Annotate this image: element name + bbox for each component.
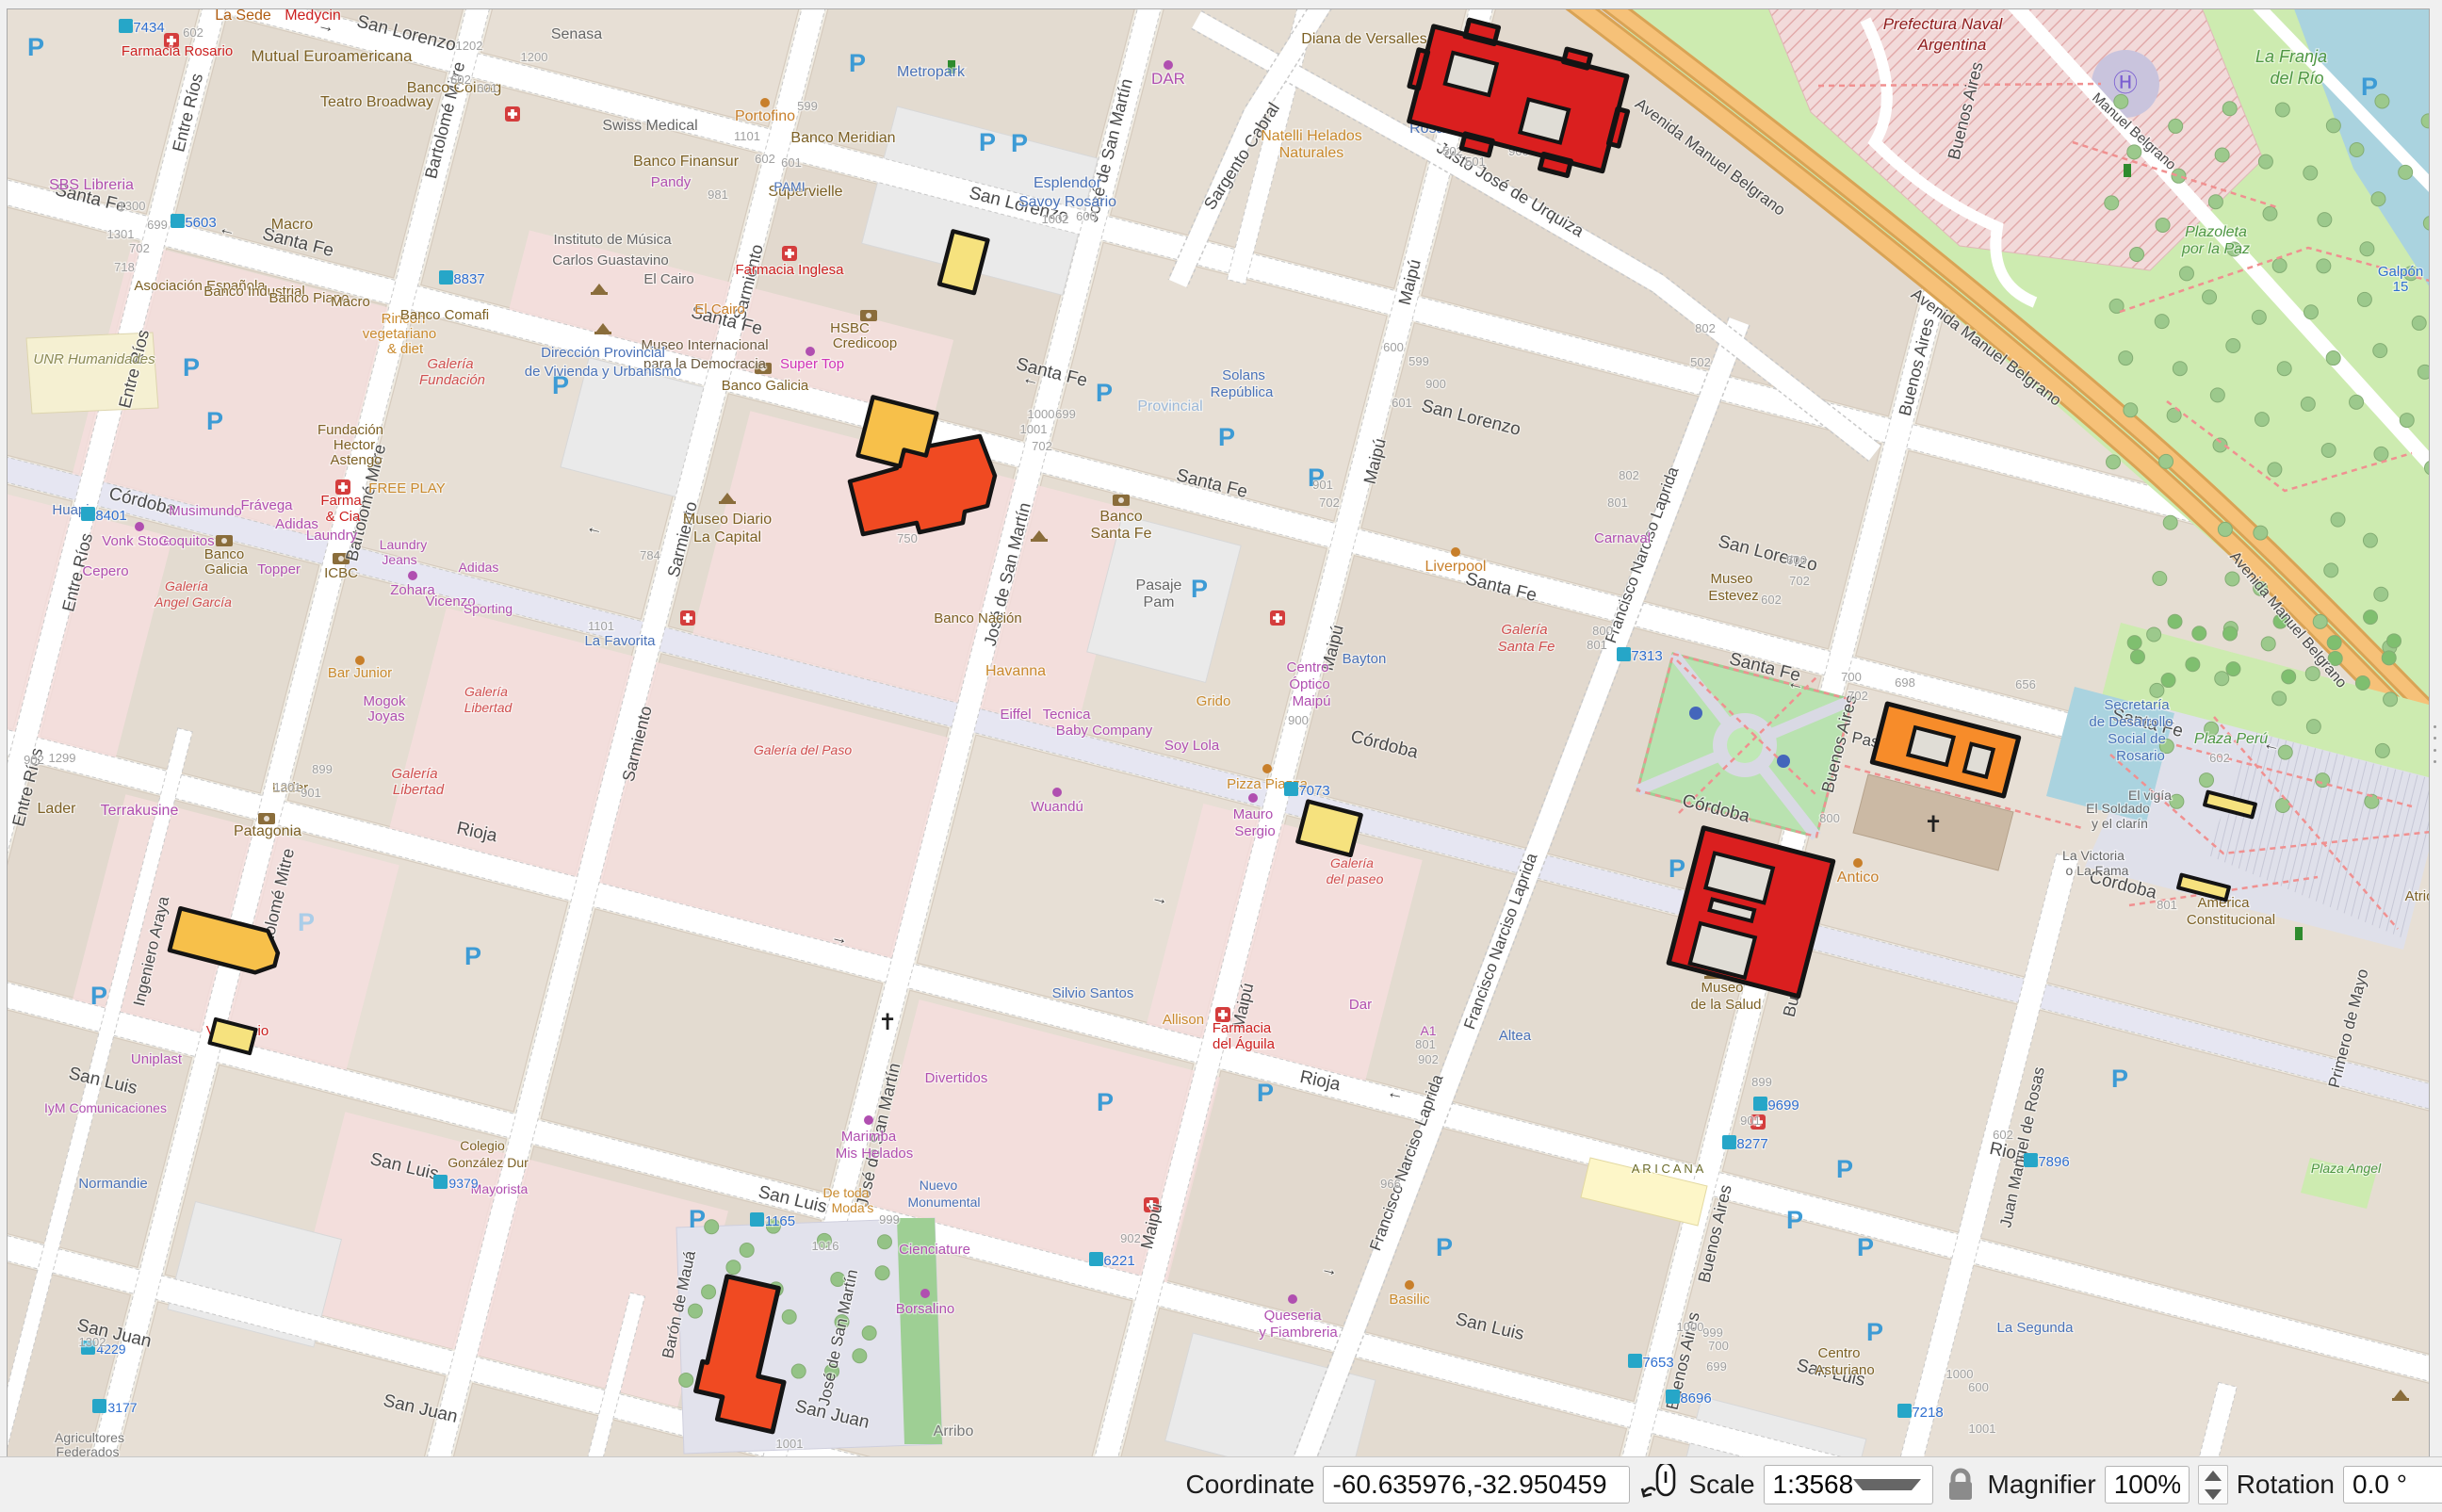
- map-label: & Cia: [326, 509, 361, 525]
- tree: [2173, 362, 2187, 376]
- map-label: 900: [1288, 713, 1309, 727]
- map-label: 601: [781, 155, 802, 170]
- map-label: 600: [1968, 1380, 1989, 1394]
- map-label: Borsalino: [896, 1301, 955, 1317]
- map-label: 802: [1695, 321, 1716, 335]
- shop-icon: [806, 347, 815, 356]
- map-label: Nuevo: [920, 1178, 958, 1193]
- tree: [2163, 515, 2177, 529]
- map-label: Museo: [1710, 571, 1752, 587]
- map-label: 702: [1789, 574, 1810, 588]
- map-label: FREE PLAY: [368, 480, 445, 496]
- map-label: Fundación: [317, 422, 383, 438]
- map-label: 1101: [588, 619, 614, 633]
- map-label: 902: [1418, 1052, 1439, 1066]
- bus-stop-icon: [1753, 1097, 1767, 1111]
- tree: [2161, 674, 2175, 688]
- map-label: 501: [1465, 154, 1486, 169]
- parking-icon: P: [1097, 1088, 1114, 1116]
- map-label: 602: [755, 152, 775, 166]
- map-label: 602: [183, 25, 203, 40]
- map-label: República: [1211, 384, 1274, 400]
- map-label: 1302: [79, 1335, 106, 1349]
- tree: [2127, 636, 2141, 650]
- map-label: Libertad: [464, 700, 513, 715]
- mouse-position-icon[interactable]: [1638, 1464, 1680, 1505]
- tree: [2301, 397, 2315, 411]
- map-label: Natelli Helados: [1261, 128, 1362, 144]
- fountain-icon: [1777, 755, 1790, 768]
- map-label: 7218: [1912, 1405, 1943, 1421]
- map-label: de Desarrollo: [2089, 714, 2173, 730]
- parking-icon: P: [1436, 1233, 1453, 1261]
- map-label: De toda: [822, 1185, 869, 1200]
- map-label: 700: [1841, 670, 1862, 684]
- scale-combo[interactable]: 1:3568: [1764, 1465, 1933, 1504]
- map-label: Mauro: [1233, 806, 1274, 822]
- map-label: Frávega: [240, 497, 293, 513]
- map-label: Estevez: [1708, 588, 1758, 604]
- map-label: Eiffel: [1000, 707, 1031, 723]
- tree: [740, 1243, 754, 1257]
- map-label: Adidas: [459, 560, 499, 575]
- map-label: 750: [897, 531, 918, 545]
- shop-icon: [135, 522, 144, 531]
- parking-icon: P: [979, 128, 996, 156]
- tree: [2226, 339, 2240, 353]
- tree: [2306, 720, 2320, 734]
- map-label: Carnaval: [1594, 530, 1651, 546]
- parking-icon: P: [1669, 854, 1685, 883]
- map-label: 599: [797, 99, 818, 113]
- parking-icon: P: [1191, 575, 1208, 603]
- tree: [2375, 743, 2389, 757]
- map-label: Galicia: [204, 561, 249, 577]
- tree: [2268, 463, 2282, 477]
- parking-icon: P: [90, 982, 107, 1010]
- map-label: vegetariano: [363, 326, 436, 342]
- map-label: La Segunda: [1997, 1320, 2075, 1336]
- map-label: Esplendor: [1034, 175, 1102, 191]
- map-label: 7653: [1642, 1355, 1673, 1371]
- map-label: Liverpool: [1425, 559, 1487, 575]
- map-label: Super Top: [780, 356, 844, 372]
- tree: [853, 1349, 867, 1363]
- map-label: Cepero: [82, 563, 128, 579]
- tree: [2321, 443, 2336, 457]
- tree: [2313, 614, 2327, 628]
- map-label: Mogok: [363, 693, 406, 709]
- map-label: Altea: [1499, 1028, 1532, 1044]
- map-label: ICBC: [324, 565, 358, 581]
- tree: [2373, 344, 2387, 358]
- map-label: El Cairo: [694, 301, 744, 317]
- tree: [705, 1220, 719, 1234]
- map-label: Hector: [334, 437, 375, 453]
- map-label: Laundry: [306, 528, 358, 544]
- map-label: Farmacia: [1213, 1020, 1272, 1036]
- tree: [702, 1285, 716, 1299]
- fitness-icon: [2124, 164, 2131, 177]
- map-label: Lader: [38, 801, 77, 817]
- tree: [862, 1325, 876, 1340]
- map-label: Credicoop: [833, 335, 897, 351]
- map-label: 1165: [765, 1213, 795, 1229]
- scale-label: Scale: [1688, 1470, 1754, 1500]
- map-label: Carlos Guastavino: [552, 252, 668, 268]
- map-label: 802: [1619, 468, 1639, 482]
- map-label: La Franja: [2255, 47, 2327, 66]
- map-label: Banco: [1099, 509, 1142, 525]
- tree: [2130, 247, 2144, 261]
- bank-icon-dot: [221, 538, 227, 544]
- map-label: 901: [1740, 1114, 1761, 1128]
- map-label: Rosario: [2116, 748, 2165, 764]
- map-label: 601: [477, 81, 497, 95]
- restaurant-icon: [1853, 858, 1863, 868]
- map-label: 8401: [95, 508, 126, 524]
- map-label: La Victoria: [2062, 848, 2125, 863]
- parking-icon: P: [1836, 1155, 1853, 1183]
- map-label: Bayton: [1343, 651, 1387, 667]
- restaurant-icon: [1451, 547, 1460, 557]
- scale-value: 1:3568: [1765, 1470, 1854, 1500]
- map-label: Macro: [271, 217, 314, 233]
- map-label: Arribo: [934, 1423, 974, 1439]
- map-label: de la Salud: [1690, 997, 1761, 1013]
- map-label: González Dur: [448, 1155, 529, 1170]
- panel-resize-handle[interactable]: [2434, 725, 2439, 763]
- map-label: 8837: [453, 271, 484, 287]
- tree: [875, 1266, 889, 1280]
- tree: [2327, 636, 2341, 650]
- spin-up-icon[interactable]: [2205, 1471, 2222, 1481]
- map-label: 966: [1380, 1177, 1401, 1191]
- tree: [2305, 667, 2320, 681]
- map-label: Secretaría: [2104, 697, 2170, 713]
- lock-scale-icon[interactable]: [1942, 1464, 1979, 1505]
- tree: [2324, 563, 2338, 577]
- map-label: Libertad: [393, 782, 445, 798]
- map-label: Angel García: [154, 594, 232, 610]
- map-label: 999: [879, 1212, 900, 1227]
- map-label: Solans: [1222, 367, 1265, 383]
- map-label: 9379: [448, 1176, 478, 1191]
- tree: [2384, 692, 2398, 707]
- restaurant-icon: [1262, 764, 1272, 773]
- map-label: Centro: [1817, 1345, 1860, 1361]
- map-label: Savoy Rosario: [1018, 194, 1116, 210]
- tree: [2159, 454, 2173, 468]
- map-label: Wuandú: [1031, 799, 1083, 815]
- map-label: Silvio Santos: [1052, 985, 1134, 1001]
- map-label: Plazoleta: [2185, 224, 2247, 240]
- restaurant-icon: [1405, 1280, 1414, 1290]
- map-label: 599: [1408, 354, 1429, 368]
- tree: [2169, 119, 2183, 133]
- helipad-icon: Ⓗ: [2113, 70, 2138, 98]
- map-label: Centro: [1286, 659, 1328, 675]
- map-label: 702: [1848, 689, 1868, 703]
- shop-icon: [1164, 60, 1173, 70]
- bus-stop-icon: [1284, 782, 1298, 796]
- tree: [2225, 572, 2239, 586]
- map-label: 602: [2209, 751, 2230, 765]
- bus-stop-icon: [1666, 1390, 1680, 1404]
- map-label: Provincial: [1137, 398, 1202, 415]
- tree: [2107, 455, 2121, 469]
- tree: [2278, 745, 2292, 759]
- parking-icon: P: [552, 371, 569, 399]
- map-label: Óptico: [1289, 676, 1329, 692]
- map-label: Allison: [1163, 1012, 1204, 1028]
- map-label: 801: [1415, 1037, 1436, 1051]
- tree: [2218, 522, 2232, 536]
- map-label: SBS Libreria: [49, 177, 134, 193]
- tree: [2179, 267, 2193, 281]
- shop-icon: [408, 571, 417, 580]
- parking-icon: P: [1308, 463, 1325, 492]
- map-label: y Fiambreria: [1259, 1325, 1338, 1341]
- map-label: Social de: [2108, 731, 2166, 747]
- tree: [2105, 196, 2119, 210]
- map-label: Farmacia Rosario: [122, 43, 233, 59]
- map-label: Galpón: [2378, 264, 2423, 280]
- map-label: 656: [2015, 677, 2036, 691]
- status-bar: Coordinate Scale 1:3568 Magnifier Rotati…: [0, 1456, 2442, 1512]
- map-label: 902: [24, 753, 44, 767]
- tree: [2374, 587, 2388, 601]
- parking-icon: P: [464, 942, 481, 970]
- map-label: Terrakusine: [101, 803, 179, 819]
- map-label: Atrio: [2405, 888, 2429, 904]
- map-label: Pasaje: [1136, 577, 1182, 593]
- tree: [679, 1373, 693, 1387]
- map-label: 1301: [107, 227, 135, 241]
- parking-icon: P: [1011, 129, 1028, 157]
- tree: [2276, 799, 2290, 813]
- magnifier-input[interactable]: [2105, 1466, 2190, 1504]
- tree: [2317, 259, 2331, 273]
- map-label: 901: [301, 786, 321, 800]
- map-label: 1000: [1028, 407, 1055, 421]
- magnifier-spinner[interactable]: [2198, 1465, 2228, 1504]
- map-label: Dirección Provincial: [541, 345, 665, 361]
- bus-stop-icon: [1089, 1252, 1103, 1266]
- church-icon: ✝: [878, 1009, 897, 1035]
- map-label: 801: [2157, 898, 2177, 912]
- map-label: 1001: [776, 1437, 804, 1451]
- shop-icon: [1248, 793, 1258, 803]
- tree: [2215, 148, 2229, 162]
- map-label: Galería: [427, 356, 473, 372]
- selected-feature-hole: [1964, 744, 1994, 777]
- tree: [2223, 626, 2238, 641]
- map-label: Galería: [1330, 855, 1374, 870]
- tree: [2200, 773, 2214, 788]
- map-label: del Águila: [1213, 1036, 1276, 1052]
- tree: [2364, 610, 2378, 625]
- map-label: Banco: [204, 546, 245, 562]
- map-label: 602: [450, 73, 471, 87]
- map-label: de Vivienda y Urbanismo: [525, 364, 681, 380]
- map-label: Metropark: [897, 64, 966, 80]
- map-label: Federados: [57, 1444, 120, 1456]
- tree: [2208, 195, 2222, 209]
- map-label: UNR Humanidades: [33, 351, 155, 367]
- map-label: Normandie: [78, 1176, 147, 1192]
- map-label: 602: [1761, 593, 1782, 607]
- map-label: 8696: [1680, 1390, 1711, 1406]
- map-label: A1: [1420, 1023, 1436, 1038]
- map-label: Mis Helados: [836, 1146, 914, 1162]
- map-label: 800: [1592, 624, 1613, 638]
- map-label: del paseo: [1327, 871, 1384, 886]
- map-label: A R I C A N A: [1632, 1162, 1704, 1176]
- map-label: 602: [1993, 1128, 2013, 1142]
- map-label: 9699: [1767, 1097, 1799, 1114]
- map-canvas[interactable]: Ⓗ✝✝San LorenzoSan LorenzoSan LorenzoSan …: [7, 8, 2430, 1457]
- tree: [2326, 351, 2340, 366]
- restaurant-icon: [355, 656, 365, 665]
- map-label: Pandy: [651, 174, 692, 190]
- map-label: 1201: [274, 780, 301, 794]
- map-label: Farma: [320, 493, 362, 509]
- map-label: 1000: [1677, 1320, 1704, 1334]
- parking-icon: P: [1786, 1206, 1803, 1234]
- bus-stop-icon: [171, 214, 185, 228]
- map-label: Argentina: [1917, 36, 1987, 54]
- map-label: Santa Fe: [1091, 526, 1152, 542]
- tree: [791, 1364, 806, 1378]
- map-label: 7434: [133, 20, 164, 36]
- map-label: Jeans: [382, 552, 416, 567]
- parking-icon: P: [1218, 423, 1235, 451]
- tree: [2252, 310, 2266, 324]
- tree: [2418, 365, 2429, 379]
- tree: [2124, 403, 2138, 417]
- map-label: 1300: [119, 199, 146, 213]
- tree: [2277, 362, 2291, 376]
- tree: [2172, 169, 2186, 183]
- map-label: 700: [1708, 1339, 1729, 1353]
- map-label: & diet: [387, 341, 424, 357]
- tree: [2147, 627, 2161, 642]
- shop-icon: [1288, 1294, 1297, 1304]
- tree: [2275, 103, 2289, 117]
- map-label: y el clarín: [2092, 816, 2148, 831]
- tree: [2153, 572, 2167, 586]
- map-label: 702: [1032, 439, 1052, 453]
- bus-stop-icon: [81, 507, 95, 521]
- map-label: 702: [129, 241, 150, 255]
- map-label: 1299: [49, 751, 76, 765]
- tree: [877, 1235, 891, 1249]
- map-label: Soy Lola: [1164, 738, 1220, 754]
- parking-icon: P: [1257, 1079, 1274, 1107]
- spin-down-icon[interactable]: [2205, 1489, 2222, 1500]
- tree: [2331, 512, 2345, 527]
- map-label: Galería: [464, 684, 508, 699]
- tree: [2192, 626, 2206, 641]
- map-label: 702: [1319, 496, 1340, 510]
- bus-stop-icon: [750, 1212, 764, 1227]
- map-label: 600: [1076, 209, 1097, 223]
- tree: [2168, 614, 2182, 628]
- map-label: Plaza Angel: [2311, 1161, 2382, 1176]
- bus-stop-icon: [92, 1399, 106, 1413]
- map-label: Plaza Perú: [2194, 731, 2268, 747]
- map-label: 1001: [1020, 422, 1048, 436]
- restaurant-icon: [760, 98, 770, 107]
- bank-icon-dot: [1118, 497, 1124, 503]
- tree: [2222, 102, 2237, 116]
- tree: [2210, 388, 2224, 402]
- tree: [688, 1304, 702, 1318]
- map-label: Queseria: [1264, 1308, 1323, 1324]
- tree: [2255, 413, 2269, 427]
- bank-icon-dot: [264, 816, 269, 821]
- map-label: Teatro Broadway: [320, 94, 433, 110]
- tree: [2272, 691, 2287, 706]
- tree: [2318, 213, 2332, 227]
- tree: [2272, 258, 2287, 272]
- parking-icon: P: [206, 407, 223, 435]
- map-label: Banco Finansur: [633, 154, 740, 170]
- map-label: Marimba: [841, 1129, 897, 1145]
- map-label: 699: [147, 218, 168, 232]
- map-label: 999: [1702, 1325, 1723, 1340]
- tree: [2254, 526, 2268, 540]
- tree: [2326, 119, 2340, 133]
- map-label: Banco Comafi: [400, 307, 489, 323]
- map-label: Sporting: [464, 601, 513, 616]
- map-label: 7313: [1631, 648, 1662, 664]
- tree: [2150, 683, 2164, 697]
- tree: [2203, 290, 2217, 304]
- map-label: 718: [114, 260, 135, 274]
- map-label: 981: [708, 187, 728, 202]
- map-label: Moda's: [832, 1200, 874, 1215]
- tree: [2155, 315, 2169, 329]
- coordinate-input[interactable]: [1323, 1466, 1630, 1504]
- map-label: Laundry: [380, 537, 428, 552]
- map-label: 801: [1607, 496, 1628, 510]
- tree: [2355, 675, 2369, 690]
- map-label: Swiss Medical: [602, 118, 697, 134]
- map-label: Dar: [1349, 997, 1372, 1013]
- tree: [2127, 145, 2141, 159]
- map-label: Diana de Versalles: [1301, 31, 1426, 47]
- tree: [2360, 242, 2374, 256]
- rotation-input[interactable]: [2343, 1466, 2442, 1504]
- rotation-label: Rotation: [2237, 1470, 2335, 1500]
- coordinate-label: Coordinate: [1186, 1470, 1315, 1500]
- tree: [2371, 192, 2385, 206]
- map-label: El Soldado: [2086, 801, 2150, 816]
- tree: [2186, 658, 2200, 672]
- map-label: PAMI: [773, 179, 805, 194]
- map-label: Antico: [1837, 870, 1880, 886]
- tree: [2374, 447, 2388, 461]
- bus-stop-icon: [1628, 1354, 1642, 1368]
- map-label: 6221: [1103, 1253, 1134, 1269]
- shop-icon: [1052, 788, 1062, 797]
- tree: [2130, 650, 2144, 664]
- tree: [2412, 316, 2426, 330]
- map-label: Monumental: [907, 1195, 980, 1210]
- map-label: La Capital: [693, 529, 761, 545]
